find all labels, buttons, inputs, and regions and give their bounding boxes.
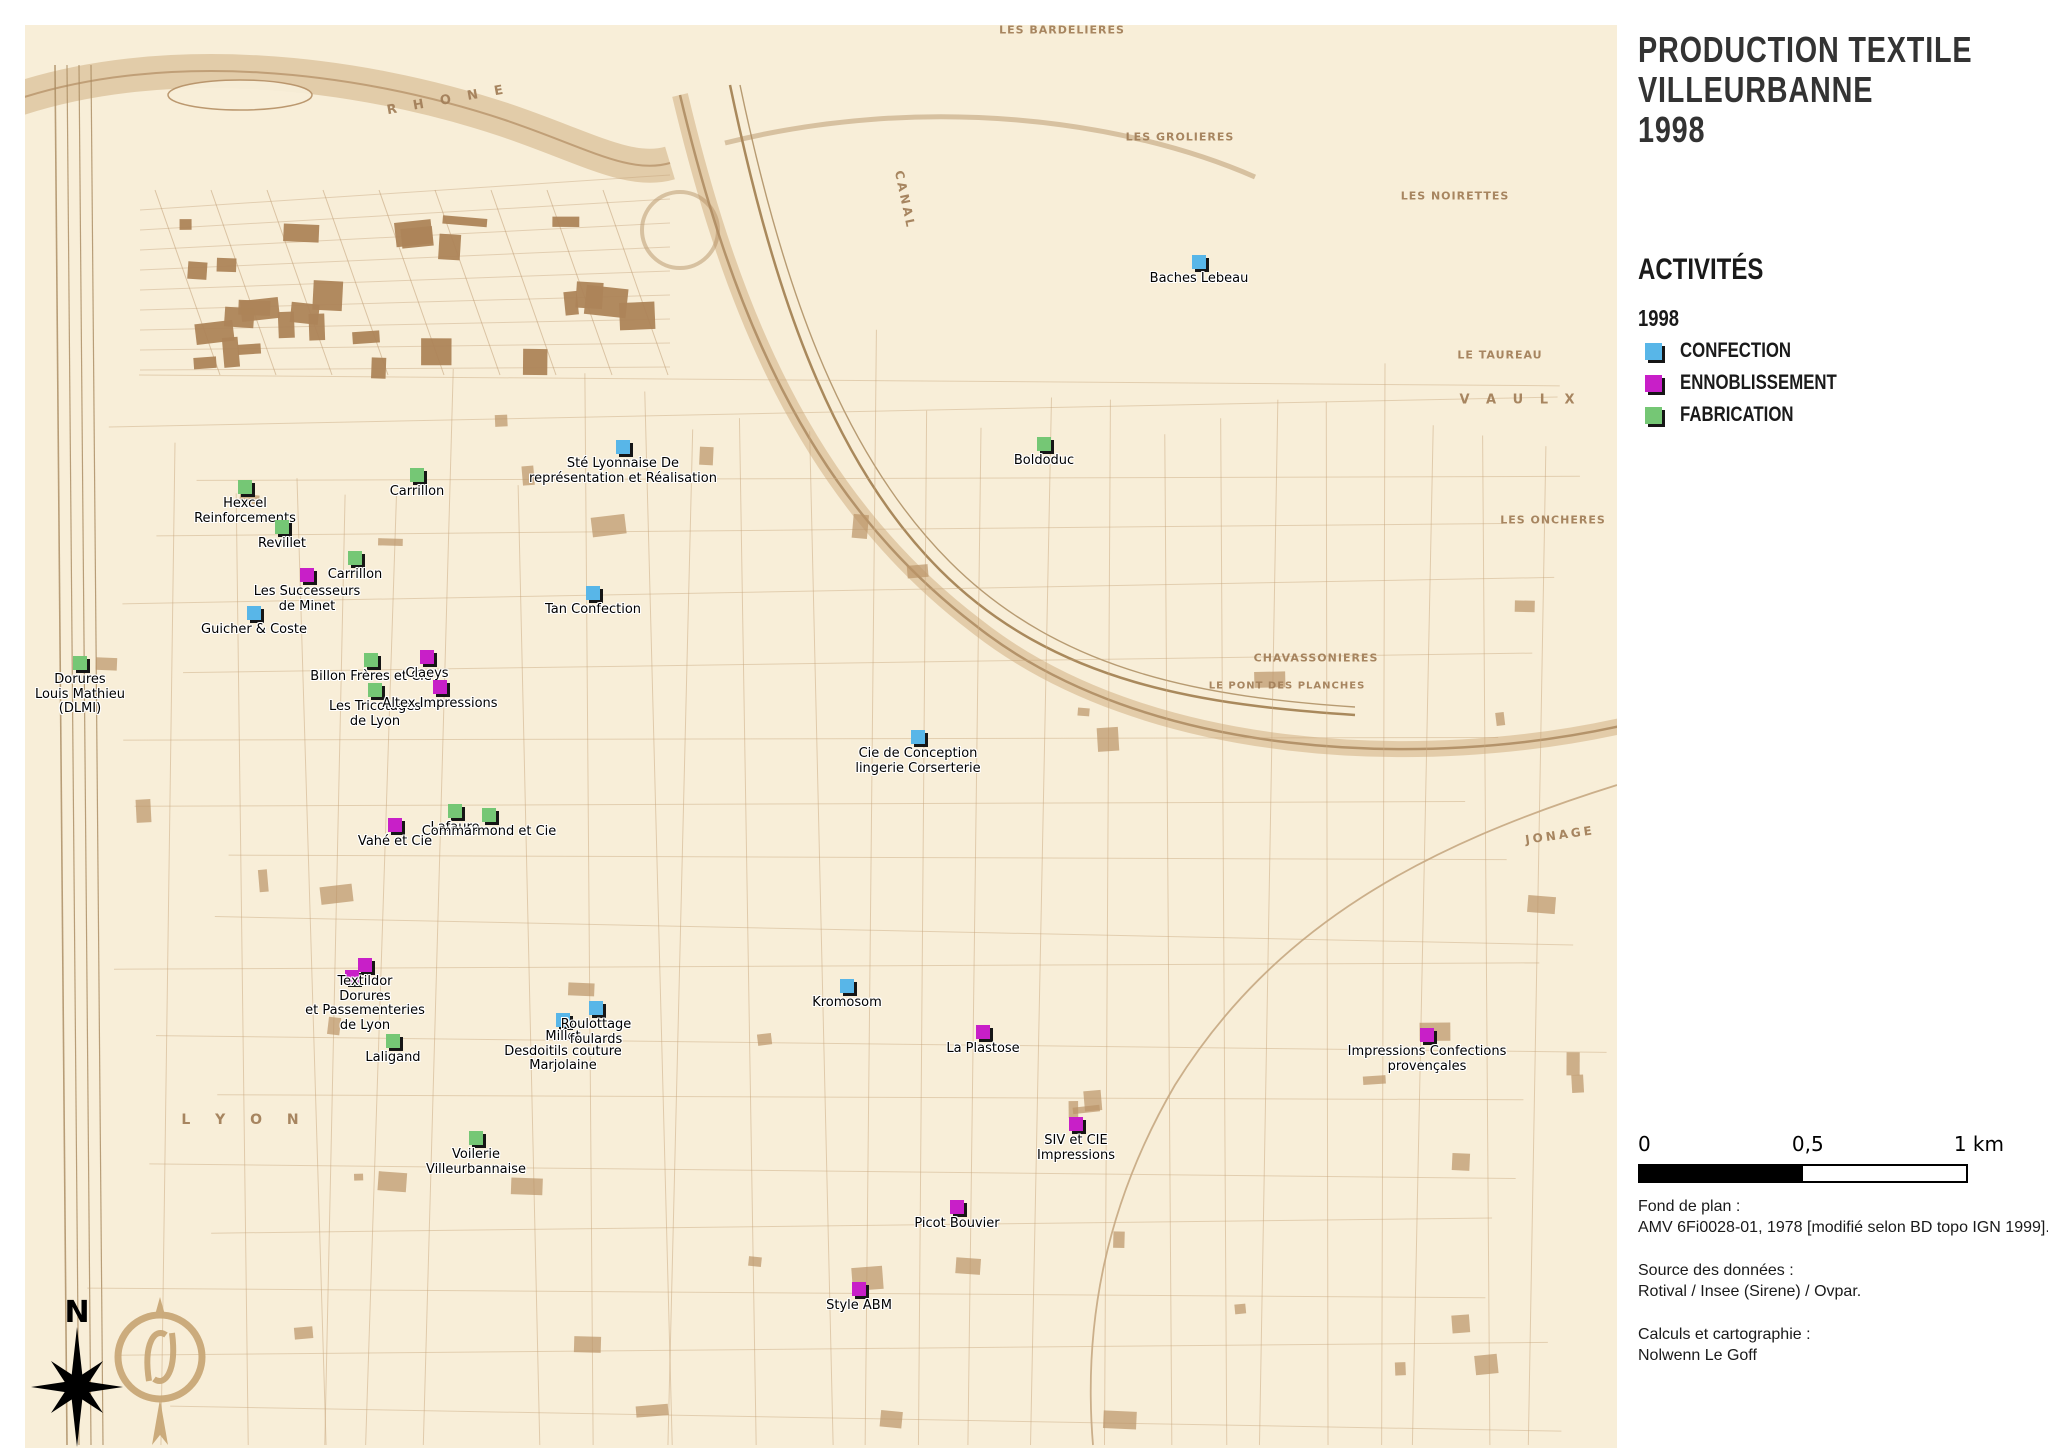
scale-ticks: 0 0,5 1 km: [1638, 1132, 1968, 1160]
legend-swatch: [1645, 407, 1662, 424]
credit-block: Source des données : Rotival / Insee (Si…: [1638, 1260, 2048, 1302]
legend-item: FABRICATION: [1645, 399, 1876, 431]
legend-item: ENNOBLISSEMENT: [1645, 367, 1876, 399]
scale-bar-rule: [1638, 1164, 1968, 1183]
page-title: PRODUCTION TEXTILEVILLEURBANNE1998: [1638, 30, 1972, 150]
legend: CONFECTION ENNOBLISSEMENT FABRICATION: [1645, 335, 1876, 431]
credit-text: AMV 6Fi0028-01, 1978 [modifié selon BD t…: [1638, 1217, 2048, 1238]
scale-bar: 0 0,5 1 km: [1638, 1132, 1968, 1183]
credit-title: Calculs et cartographie :: [1638, 1324, 2048, 1345]
credit-title: Source des données :: [1638, 1260, 2048, 1281]
north-label: N: [64, 1295, 89, 1330]
legend-year: 1998: [1638, 305, 1679, 332]
scale-tick-0: 0: [1638, 1132, 1651, 1156]
credit-block: Calculs et cartographie : Nolwenn Le Gof…: [1638, 1324, 2048, 1366]
page-title-line: PRODUCTION TEXTILE: [1638, 30, 1972, 70]
credits: Fond de plan : AMV 6Fi0028-01, 1978 [mod…: [1638, 1196, 2048, 1388]
legend-item-label: CONFECTION: [1680, 339, 1791, 363]
legend-swatch: [1645, 343, 1662, 360]
page-title-line: 1998: [1638, 110, 1972, 150]
basemap-drawing: N: [25, 25, 1617, 1448]
credit-block: Fond de plan : AMV 6Fi0028-01, 1978 [mod…: [1638, 1196, 2048, 1238]
scale-tick-05: 0,5: [1792, 1132, 1824, 1156]
scale-tick-1km: 1 km: [1954, 1132, 2004, 1156]
credit-text: Rotival / Insee (Sirene) / Ovpar.: [1638, 1281, 2048, 1302]
legend-swatch: [1645, 375, 1662, 392]
map-sheet: N R H O N ECANALL Y O NJONAGEV A U L XLE…: [0, 0, 2048, 1448]
river-island: [168, 80, 312, 110]
credit-text: Nolwenn Le Goff: [1638, 1345, 2048, 1366]
legend-item-label: FABRICATION: [1680, 403, 1794, 427]
legend-item-label: ENNOBLISSEMENT: [1680, 371, 1837, 395]
map-canvas: N: [25, 25, 1617, 1448]
legend-heading: ACTIVITÉS: [1638, 253, 1763, 287]
scale-bar-filled-half: [1640, 1166, 1803, 1181]
page-title-line: VILLEURBANNE: [1638, 70, 1972, 110]
legend-item: CONFECTION: [1645, 335, 1876, 367]
map-paper: [25, 25, 1617, 1448]
credit-title: Fond de plan :: [1638, 1196, 2048, 1217]
